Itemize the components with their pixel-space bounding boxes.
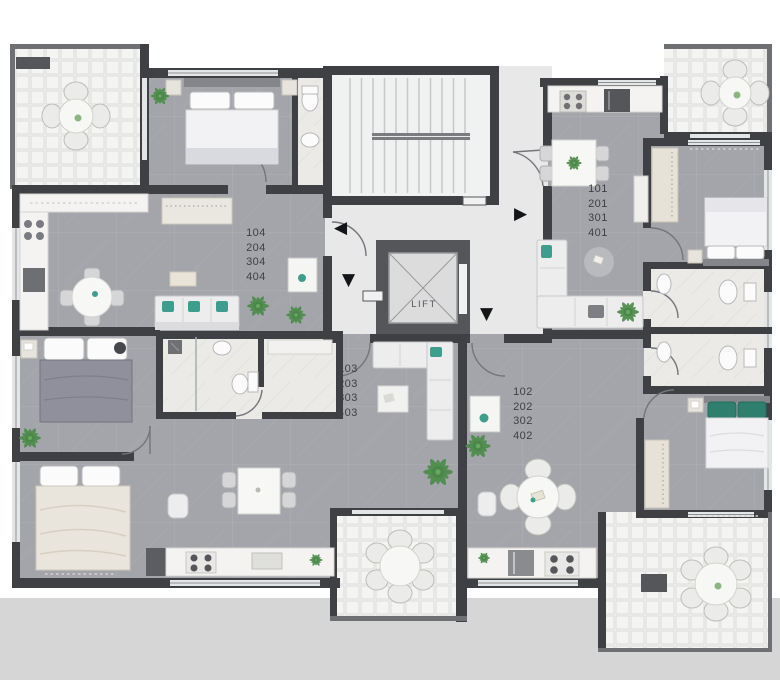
unit-number: 202 — [505, 400, 541, 415]
lift-door — [459, 264, 467, 314]
unit-number: 404 — [238, 270, 274, 285]
unit-number: 303 — [330, 391, 366, 406]
unit-number: 102 — [505, 385, 541, 400]
kitchen-counter — [468, 548, 596, 578]
nightstand — [688, 250, 702, 263]
unit-number: 402 — [505, 429, 541, 444]
lift-shaft — [363, 240, 470, 336]
unit-stack-label-102: 102 202 302 402 — [505, 385, 541, 443]
kitchen-counter — [146, 548, 334, 576]
unit-number: 301 — [580, 211, 616, 226]
unit-number: 304 — [238, 255, 274, 270]
console — [634, 176, 648, 222]
kitchen-counter — [548, 86, 662, 112]
entrance-arrow-down-icon: ▼ — [480, 306, 493, 323]
unit-number: 201 — [580, 197, 616, 212]
unit-number: 103 — [330, 362, 366, 377]
bed-second — [36, 466, 130, 570]
floorplan-rendering — [0, 0, 780, 680]
wardrobe — [652, 148, 678, 222]
unit-number: 203 — [330, 377, 366, 392]
sofa — [155, 296, 239, 330]
entrance-arrow-right-icon: ▶ — [514, 206, 527, 223]
floorplan-canvas: 104 204 304 404 101 201 301 401 103 203 … — [0, 0, 780, 680]
rug — [378, 386, 408, 412]
wall-niche — [470, 396, 500, 432]
armchair — [478, 492, 496, 516]
plant-pot — [114, 342, 126, 354]
coffee-table — [170, 272, 196, 286]
unit-stack-label-103: 103 203 303 403 — [330, 362, 366, 420]
wall-niche — [288, 258, 317, 292]
lift-label: LIFT — [404, 299, 444, 310]
unit-stack-label-101: 101 201 301 401 — [580, 182, 616, 240]
entrance-arrow-down-icon: ▼ — [342, 272, 355, 289]
armchair — [168, 494, 188, 518]
unit-number: 204 — [238, 241, 274, 256]
unit-number: 401 — [580, 226, 616, 241]
wc-counter — [268, 340, 332, 354]
unit-number: 104 — [238, 226, 274, 241]
nightstand — [166, 80, 181, 95]
unit-number: 302 — [505, 414, 541, 429]
unit-stack-label-104: 104 204 304 404 — [238, 226, 274, 284]
unit-number: 101 — [580, 182, 616, 197]
nightstand — [282, 80, 297, 95]
bed — [703, 198, 769, 266]
dresser — [162, 198, 232, 224]
wardrobe — [645, 440, 669, 508]
entrance-arrow-left-icon: ◀ — [334, 220, 347, 237]
unit-number: 403 — [330, 406, 366, 421]
